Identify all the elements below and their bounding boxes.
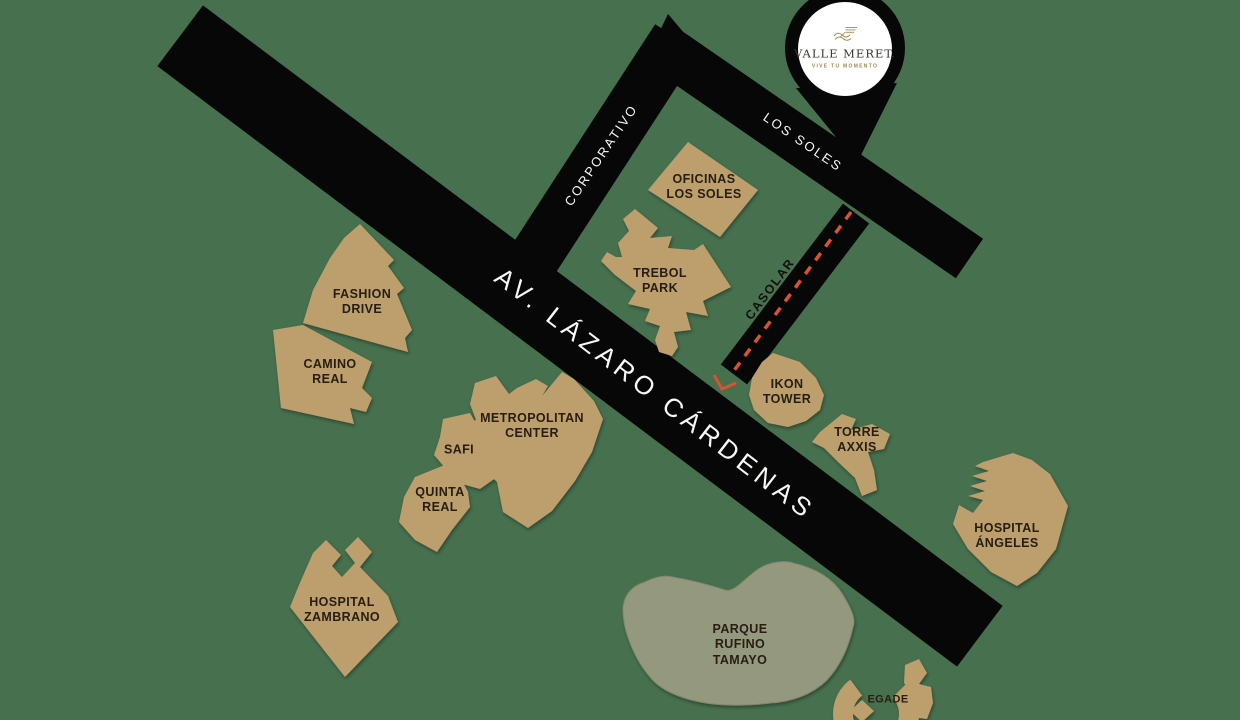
pin-branding: VALLE MERET. VIVE TU MOMENTO	[799, 25, 891, 70]
building-metropolitan-center	[459, 372, 603, 528]
place-label-metropolitan-center: METROPOLITAN CENTER	[480, 411, 584, 442]
place-label-fashion-drive: FASHION DRIVE	[333, 287, 391, 318]
place-label-oficinas-los-soles: OFICINAS LOS SOLES	[666, 172, 741, 203]
pin-brand-name: VALLE MERET.	[794, 47, 896, 61]
place-label-safi: SAFI	[444, 442, 474, 457]
place-label-torre-axxis: TORRE AXXIS	[834, 425, 880, 456]
place-label-ikon-tower: IKON TOWER	[763, 377, 811, 408]
route-arrow-icon	[714, 375, 736, 389]
pin-brand-tagline: VIVE TU MOMENTO	[812, 64, 878, 70]
place-label-trebol-park: TREBOL PARK	[633, 266, 687, 297]
place-label-quinta-real: QUINTA REAL	[415, 485, 464, 516]
place-label-parque-rufino-tamayo: PARQUE RUFINO TAMAYO	[713, 622, 768, 668]
place-label-hospital-zambrano: HOSPITAL ZAMBRANO	[304, 595, 380, 626]
place-label-hospital-angeles: HOSPITAL ÁNGELES	[974, 521, 1039, 552]
place-label-camino-real: CAMINO REAL	[303, 357, 356, 388]
place-label-egade: EGADE	[867, 693, 908, 706]
valle-meret-logo-icon	[830, 25, 860, 44]
road-casolar	[721, 204, 869, 385]
location-map: AV. LÁZARO CÁRDENAS CORPORATIVO LOS SOLE…	[0, 0, 1240, 720]
building-hospital-angeles	[953, 453, 1068, 586]
